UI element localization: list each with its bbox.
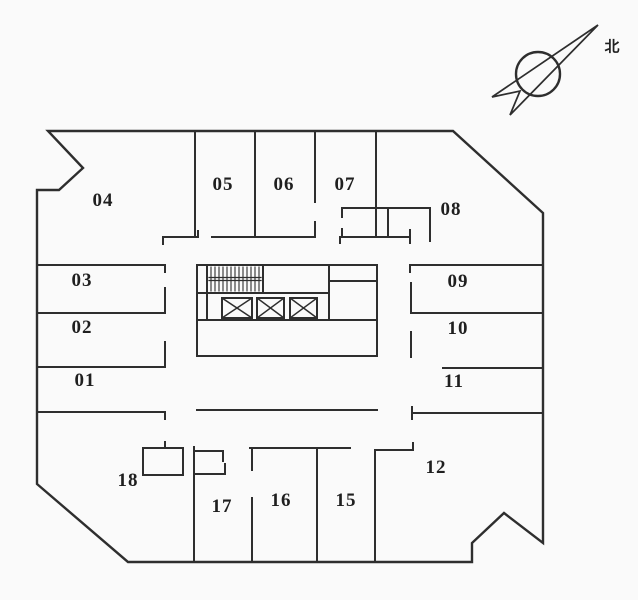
room-label-17: 17: [212, 496, 233, 518]
room-label-11: 11: [444, 371, 464, 393]
room-label-03: 03: [72, 270, 93, 292]
room-label-01: 01: [75, 370, 96, 392]
core-walls: [197, 265, 377, 356]
stair-hatch-icon: [209, 267, 261, 291]
room-label-06: 06: [274, 174, 295, 196]
room-label-05: 05: [213, 174, 234, 196]
floor-plan-drawing: [0, 0, 638, 600]
elevator-icon-1: [222, 298, 252, 318]
room-label-09: 09: [448, 271, 469, 293]
compass-circle: [516, 52, 560, 96]
floor-plan: 01 02 03 04 05 06 07 08 09 10 11 12 15 1…: [0, 0, 638, 600]
room-label-04: 04: [93, 190, 114, 212]
elevator-icon-3: [290, 298, 317, 318]
room-label-08: 08: [441, 199, 462, 221]
corridor-top-wall: [163, 230, 410, 244]
riser-box-18: [143, 442, 225, 475]
room-label-07: 07: [335, 174, 356, 196]
north-label: 北: [604, 36, 619, 57]
room-label-10: 10: [448, 318, 469, 340]
room-label-15: 15: [336, 490, 357, 512]
right-room-walls: [410, 265, 543, 419]
core-outline: [197, 265, 377, 356]
elevator-icon-2: [257, 298, 284, 318]
compass: [492, 25, 598, 115]
room-label-16: 16: [271, 490, 292, 512]
north-needle-icon: [492, 25, 598, 115]
left-room-walls: [37, 265, 165, 419]
room-label-12: 12: [426, 457, 447, 479]
room-label-18: 18: [118, 470, 139, 492]
room-label-02: 02: [72, 317, 93, 339]
